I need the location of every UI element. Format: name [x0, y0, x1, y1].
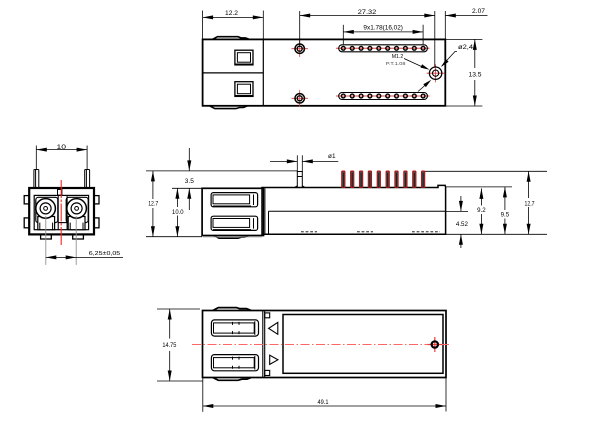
svg-text:12.2: 12.2	[225, 10, 238, 17]
svg-text:14.75: 14.75	[162, 342, 177, 349]
svg-text:49.1: 49.1	[318, 399, 330, 406]
svg-text:3.5: 3.5	[185, 178, 195, 185]
svg-text:6,25±0,05: 6,25±0,05	[89, 251, 121, 257]
svg-text:ø2,4: ø2,4	[458, 44, 474, 51]
svg-text:12,7: 12,7	[525, 201, 535, 208]
svg-text:9.2: 9.2	[477, 207, 486, 214]
svg-text:M1.2: M1.2	[392, 54, 404, 60]
svg-text:2.07: 2.07	[472, 9, 486, 15]
svg-text:4.52: 4.52	[456, 221, 469, 228]
svg-text:P.T.1.08: P.T.1.08	[386, 61, 406, 66]
svg-text:27.32: 27.32	[358, 9, 377, 16]
svg-text:12.7: 12.7	[148, 201, 158, 208]
svg-text:10.0: 10.0	[172, 209, 184, 216]
svg-text:13.5: 13.5	[469, 72, 483, 79]
svg-text:10: 10	[57, 144, 67, 151]
svg-text:9x1.78(16,02): 9x1.78(16,02)	[363, 24, 403, 31]
svg-text:9.5: 9.5	[501, 212, 510, 219]
svg-text:ø1: ø1	[328, 153, 336, 160]
